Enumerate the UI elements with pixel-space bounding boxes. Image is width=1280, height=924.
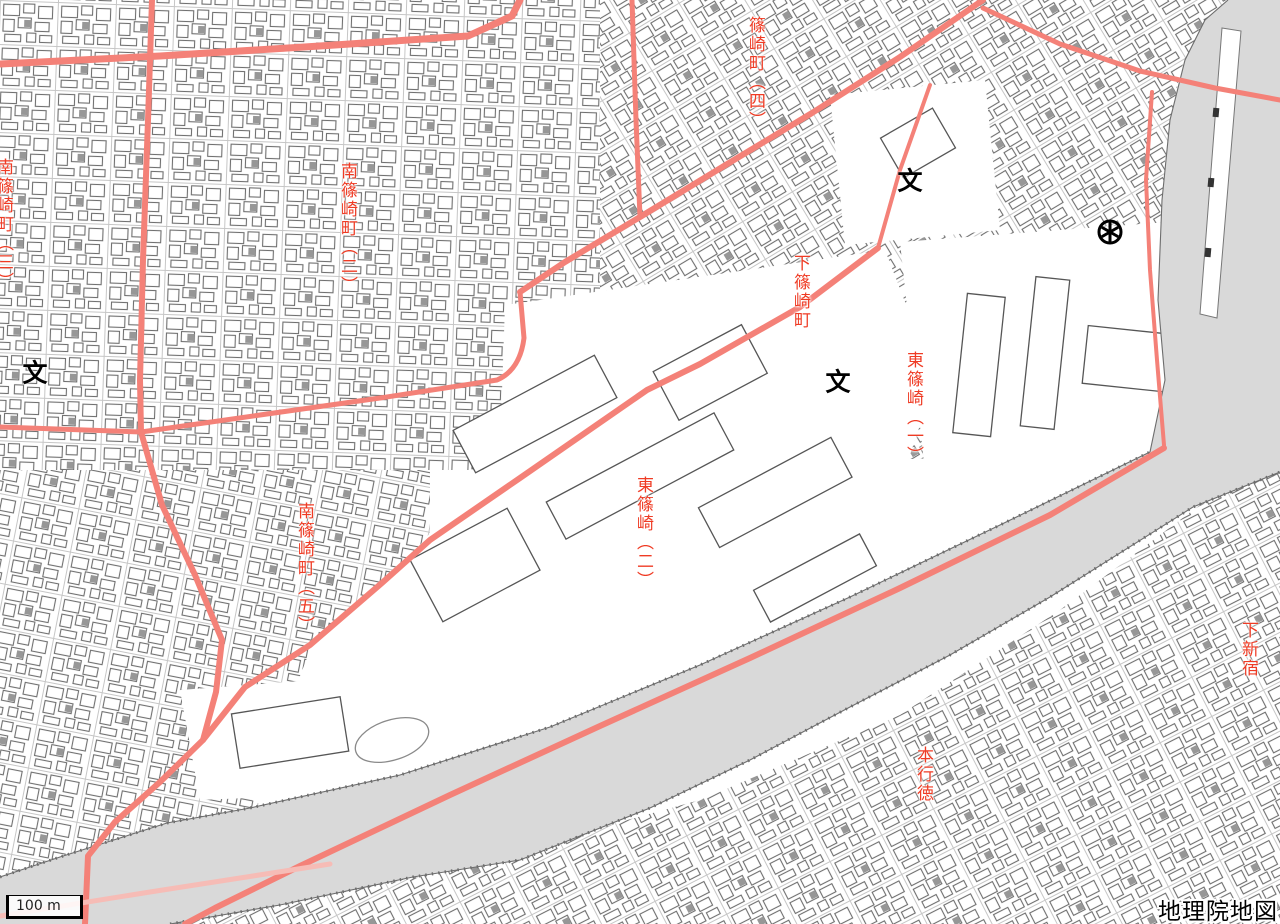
attribution-link[interactable]: 地理院地図: [1158, 892, 1278, 924]
map-viewport[interactable]: 篠崎町（四）南篠崎町（三）南篠崎町（二）下篠崎町東篠崎（一）東篠崎（二）南篠崎町…: [0, 0, 1280, 924]
scale-bar: 100 m: [6, 895, 83, 919]
scale-bar-label: 100 m: [16, 898, 61, 914]
map-canvas[interactable]: [0, 0, 1280, 924]
